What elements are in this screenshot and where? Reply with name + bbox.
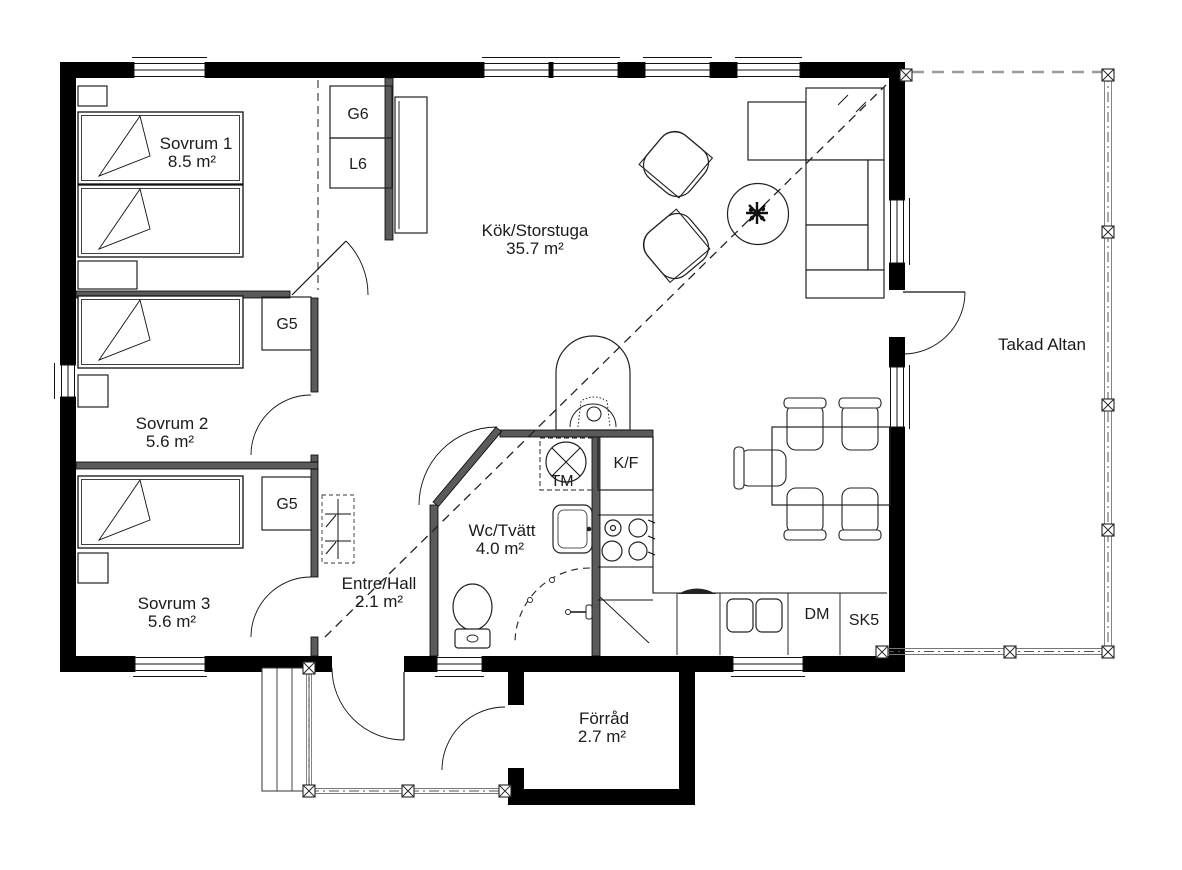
- bed: [78, 185, 243, 257]
- window-kok-1: [484, 62, 549, 78]
- altan-post: [1102, 226, 1114, 238]
- porch-steps: [262, 668, 309, 791]
- door-altan: [903, 292, 965, 354]
- label-altan-name: Takad Altan: [998, 335, 1086, 354]
- wall-wc-kitchen: [592, 430, 600, 656]
- window-altan-1: [889, 198, 910, 265]
- door-entrance: [332, 668, 404, 740]
- wall-sovrum2-hall-stub: [311, 455, 318, 462]
- takad-altan: [876, 69, 1114, 658]
- dining-chair: [784, 398, 826, 450]
- wood-stove: [556, 336, 630, 430]
- window-sovrum3: [133, 656, 207, 677]
- stove: [602, 519, 655, 561]
- floorplan-drawing: Sovrum 1 8.5 m² Sovrum 2 5.6 m² Sovrum 3…: [0, 0, 1182, 870]
- hat-rack-hooks: [325, 499, 351, 559]
- dining-chair: [839, 488, 881, 540]
- door-sovrum2: [251, 395, 311, 455]
- window-kitchen: [731, 656, 805, 677]
- altan-post: [1004, 646, 1016, 658]
- wall-kitchen-top: [500, 430, 653, 437]
- label-sovrum2-area: 5.6 m²: [146, 432, 195, 451]
- door-wc: [419, 427, 497, 505]
- floorplan-page: Sovrum 1 8.5 m² Sovrum 2 5.6 m² Sovrum 3…: [0, 0, 1182, 870]
- wc-sink: [553, 505, 592, 553]
- dining-set: [734, 398, 890, 540]
- armchair-1: [637, 125, 716, 204]
- label-entre-name: Entre/Hall: [342, 574, 417, 593]
- altan-post: [876, 646, 888, 658]
- window-sovrum2: [55, 363, 77, 399]
- nightstand: [78, 553, 108, 583]
- label-kf: K/F: [614, 455, 639, 472]
- altan-post: [900, 69, 912, 81]
- wall-sovrum2-sovrum3: [76, 462, 318, 469]
- altan-post: [1102, 69, 1114, 81]
- toilet: [453, 584, 492, 648]
- label-forrad-name: Förråd: [579, 709, 629, 728]
- label-wc-name: Wc/Tvätt: [468, 521, 535, 540]
- living-room-furniture: [637, 88, 890, 540]
- label-sk5: SK5: [849, 612, 879, 629]
- window-altan-2: [889, 365, 910, 429]
- label-g6: G6: [347, 106, 368, 123]
- door-sovrum3: [251, 577, 311, 637]
- label-sovrum1-name: Sovrum 1: [160, 134, 233, 153]
- wall-sovrum2-hall-upper: [311, 298, 318, 392]
- label-kok-area: 35.7 m²: [506, 239, 564, 258]
- plant: [746, 202, 768, 224]
- hall-fixtures: [322, 495, 354, 563]
- door-forrad: [442, 707, 505, 770]
- altan-post: [1102, 399, 1114, 411]
- altan-post: [1102, 524, 1114, 536]
- sovrum1-furniture: [78, 86, 243, 289]
- porch-post: [303, 662, 315, 674]
- bed: [78, 476, 243, 548]
- shower-mixer: [566, 605, 593, 619]
- wall-sovrum3-hall-stub: [311, 637, 318, 656]
- dining-chair: [734, 447, 786, 489]
- shower-curtain: [515, 568, 590, 643]
- dining-chair: [839, 398, 881, 450]
- label-wc-area: 4.0 m²: [476, 539, 525, 558]
- sovrum2-furniture: [78, 296, 311, 407]
- label-sovrum1-area: 8.5 m²: [168, 152, 217, 171]
- entrance-door-opening: [332, 656, 404, 672]
- nightstand: [78, 375, 108, 407]
- media-bench: [395, 97, 427, 233]
- porch-post: [303, 785, 315, 797]
- kitchen-sink: [727, 599, 782, 632]
- label-kok-name: Kök/Storstuga: [482, 221, 589, 240]
- label-entre-area: 2.1 m²: [355, 592, 404, 611]
- window-sovrum1: [132, 58, 207, 79]
- door-sovrum1: [292, 241, 368, 295]
- window-kok-4: [735, 58, 802, 79]
- sovrum3-furniture: [78, 476, 311, 583]
- roof-ridge-line: [325, 85, 886, 637]
- label-dm: DM: [805, 606, 830, 623]
- entrance-porch: [262, 662, 511, 797]
- label-sovrum3-area: 5.6 m²: [148, 612, 197, 631]
- label-forrad-area: 2.7 m²: [578, 727, 627, 746]
- altan-post: [1102, 646, 1114, 658]
- label-g5-sovrum2: G5: [276, 316, 297, 333]
- label-l6: L6: [349, 156, 367, 173]
- wardrobes-g6-l6: [330, 86, 427, 233]
- bed: [78, 296, 243, 368]
- wall-sovrum3-hall-upper: [311, 469, 318, 577]
- label-sovrum2-name: Sovrum 2: [136, 414, 209, 433]
- armchair-2: [637, 207, 716, 286]
- label-g5-sovrum3: G5: [276, 496, 297, 513]
- counter-item: [678, 589, 716, 595]
- corner-cabinet-diagonal: [600, 597, 649, 643]
- nightstand: [78, 86, 107, 106]
- porch-post: [499, 785, 511, 797]
- porch-post: [402, 785, 414, 797]
- wall-wc-chamfer: [433, 427, 502, 507]
- nightstand: [78, 261, 137, 289]
- label-sovrum3-name: Sovrum 3: [138, 594, 211, 613]
- dining-chair: [784, 488, 826, 540]
- dining-table: [772, 427, 890, 505]
- window-kok-3: [643, 58, 712, 79]
- label-tm: TM: [550, 473, 573, 490]
- window-wc: [435, 656, 484, 677]
- cabinet-divisions: [677, 593, 840, 655]
- altan-door-opening: [889, 290, 905, 337]
